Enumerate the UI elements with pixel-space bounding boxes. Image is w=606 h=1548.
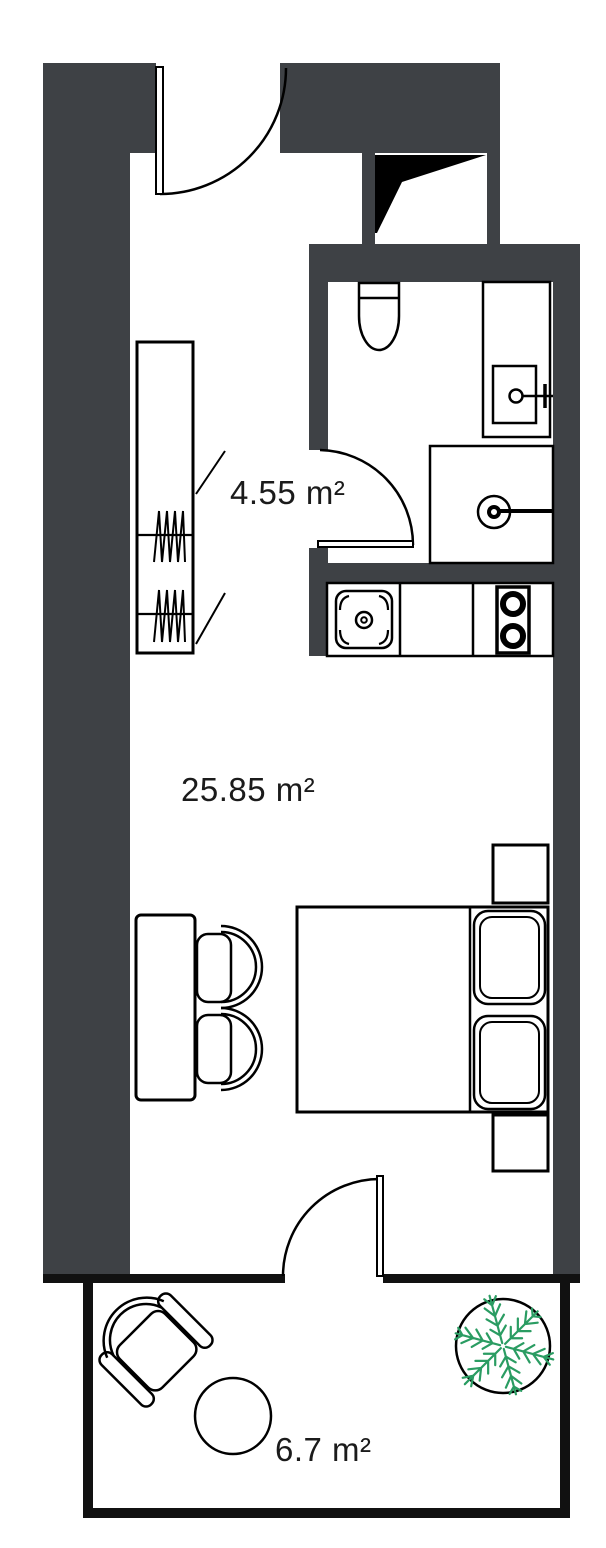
double-bed	[297, 907, 548, 1112]
balcony-door	[283, 1176, 383, 1276]
wall-right	[553, 244, 580, 1278]
toilet	[359, 283, 399, 350]
bathroom-area-label: 4.55 m²	[230, 476, 345, 509]
balcony-area-label: 6.7 m²	[275, 1433, 372, 1466]
armchair	[82, 1276, 216, 1410]
wall-top-left-block	[43, 63, 156, 153]
shower	[430, 446, 553, 563]
wall-room-bottom-left	[43, 1274, 285, 1283]
wall-balcony-left	[83, 1281, 93, 1518]
washbasin	[483, 282, 553, 437]
desk	[136, 915, 195, 1100]
door-swing-arc	[160, 68, 286, 194]
wall-left	[43, 153, 130, 1276]
desk-chair	[197, 926, 262, 1008]
entry-door	[156, 67, 286, 194]
floor-plan: 4.55 m² 25.85 m² 6.7 m²	[0, 0, 606, 1548]
nightstand	[493, 1115, 548, 1171]
wardrobe-door-line	[196, 451, 225, 494]
round-table	[195, 1378, 271, 1454]
door-swing-arc	[283, 1179, 380, 1276]
hanging-clothes-icon	[154, 590, 185, 642]
wall-balcony-bottom	[83, 1508, 570, 1518]
hanging-clothes-icon	[154, 511, 185, 562]
door-leaf	[156, 67, 163, 194]
wardrobe-door-line	[196, 593, 225, 644]
wardrobe	[137, 342, 225, 653]
wall-shaft-left	[362, 153, 375, 245]
ventilation-shaft-icon	[375, 155, 486, 233]
main-room-area-label: 25.85 m²	[181, 773, 315, 806]
desk-chair	[197, 1008, 262, 1090]
door-leaf	[377, 1176, 383, 1276]
wall-room-bottom-right	[383, 1274, 580, 1283]
wall-partition-lower	[309, 548, 328, 656]
wall-bathroom-top	[309, 244, 580, 282]
nightstand	[493, 845, 548, 903]
plant-icon	[453, 1293, 555, 1396]
wall-shaft-right	[487, 153, 500, 245]
wall-balcony-right	[560, 1281, 570, 1518]
wall-top-right-block	[280, 63, 500, 153]
door-leaf	[318, 541, 413, 547]
wall-bathroom-bottom	[328, 563, 553, 583]
wall-partition-upper	[309, 282, 328, 450]
